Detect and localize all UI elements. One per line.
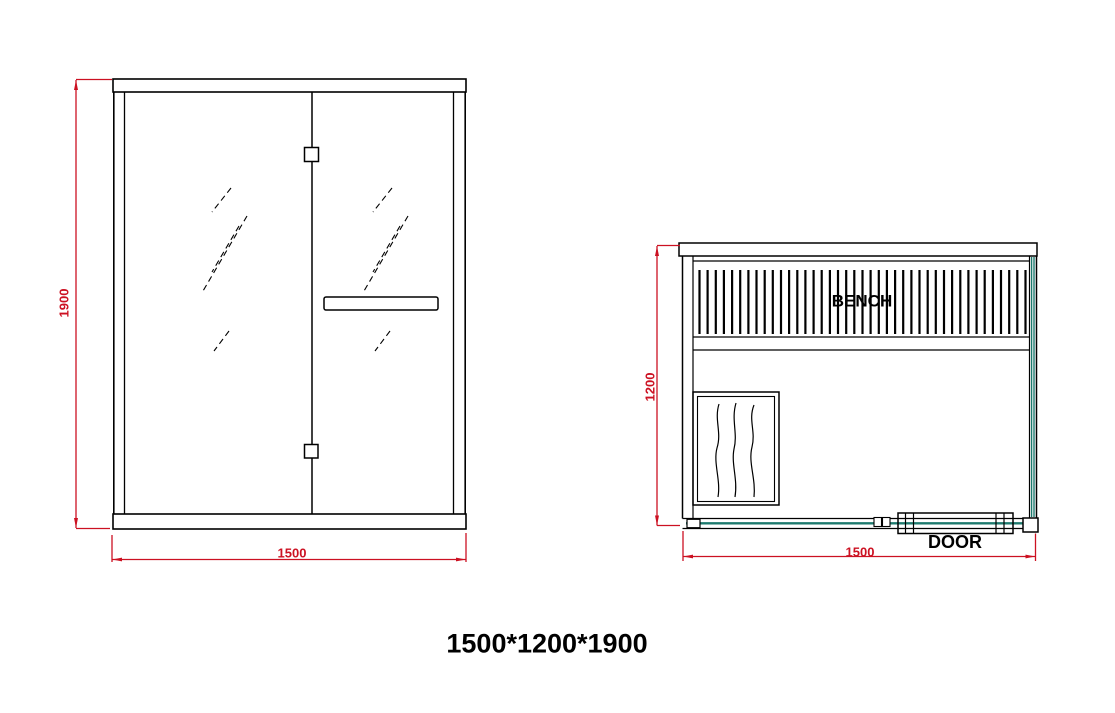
front-width-label: 1500 xyxy=(278,547,307,560)
plan-depth-dimension xyxy=(655,246,680,526)
sauna-technical-drawing: 1900 1500 1200 1500 BENCH DOOR 1500*1200… xyxy=(0,0,1115,713)
plan-view xyxy=(679,243,1038,534)
front-height-dimension xyxy=(74,80,112,529)
door-handle xyxy=(324,297,438,310)
bench-label: BENCH xyxy=(832,293,892,310)
glass-reflection-right xyxy=(364,188,408,351)
drawing-linework xyxy=(0,0,1115,713)
door-latch-right xyxy=(883,518,891,527)
front-elevation-view xyxy=(113,79,466,529)
plan-width-label: 1500 xyxy=(846,546,875,559)
front-height-label: 1900 xyxy=(58,289,71,318)
plan-right-glass xyxy=(1032,257,1034,517)
glass-clamp xyxy=(687,519,700,527)
corner-post xyxy=(1023,518,1038,532)
front-bottom-rail xyxy=(113,514,466,529)
glass-reflection-left xyxy=(203,188,247,351)
front-top-cap xyxy=(113,79,466,92)
plan-top-wall xyxy=(679,243,1037,256)
door-label: DOOR xyxy=(928,533,982,551)
door-hinge-top xyxy=(305,148,319,162)
heater-steam-waves xyxy=(716,403,754,497)
door-hinge-bottom xyxy=(305,445,319,459)
door-latch-left xyxy=(874,518,882,527)
drawing-title: 1500*1200*1900 xyxy=(446,631,647,658)
dimension-lines xyxy=(74,80,1036,563)
plan-depth-label: 1200 xyxy=(644,373,657,402)
